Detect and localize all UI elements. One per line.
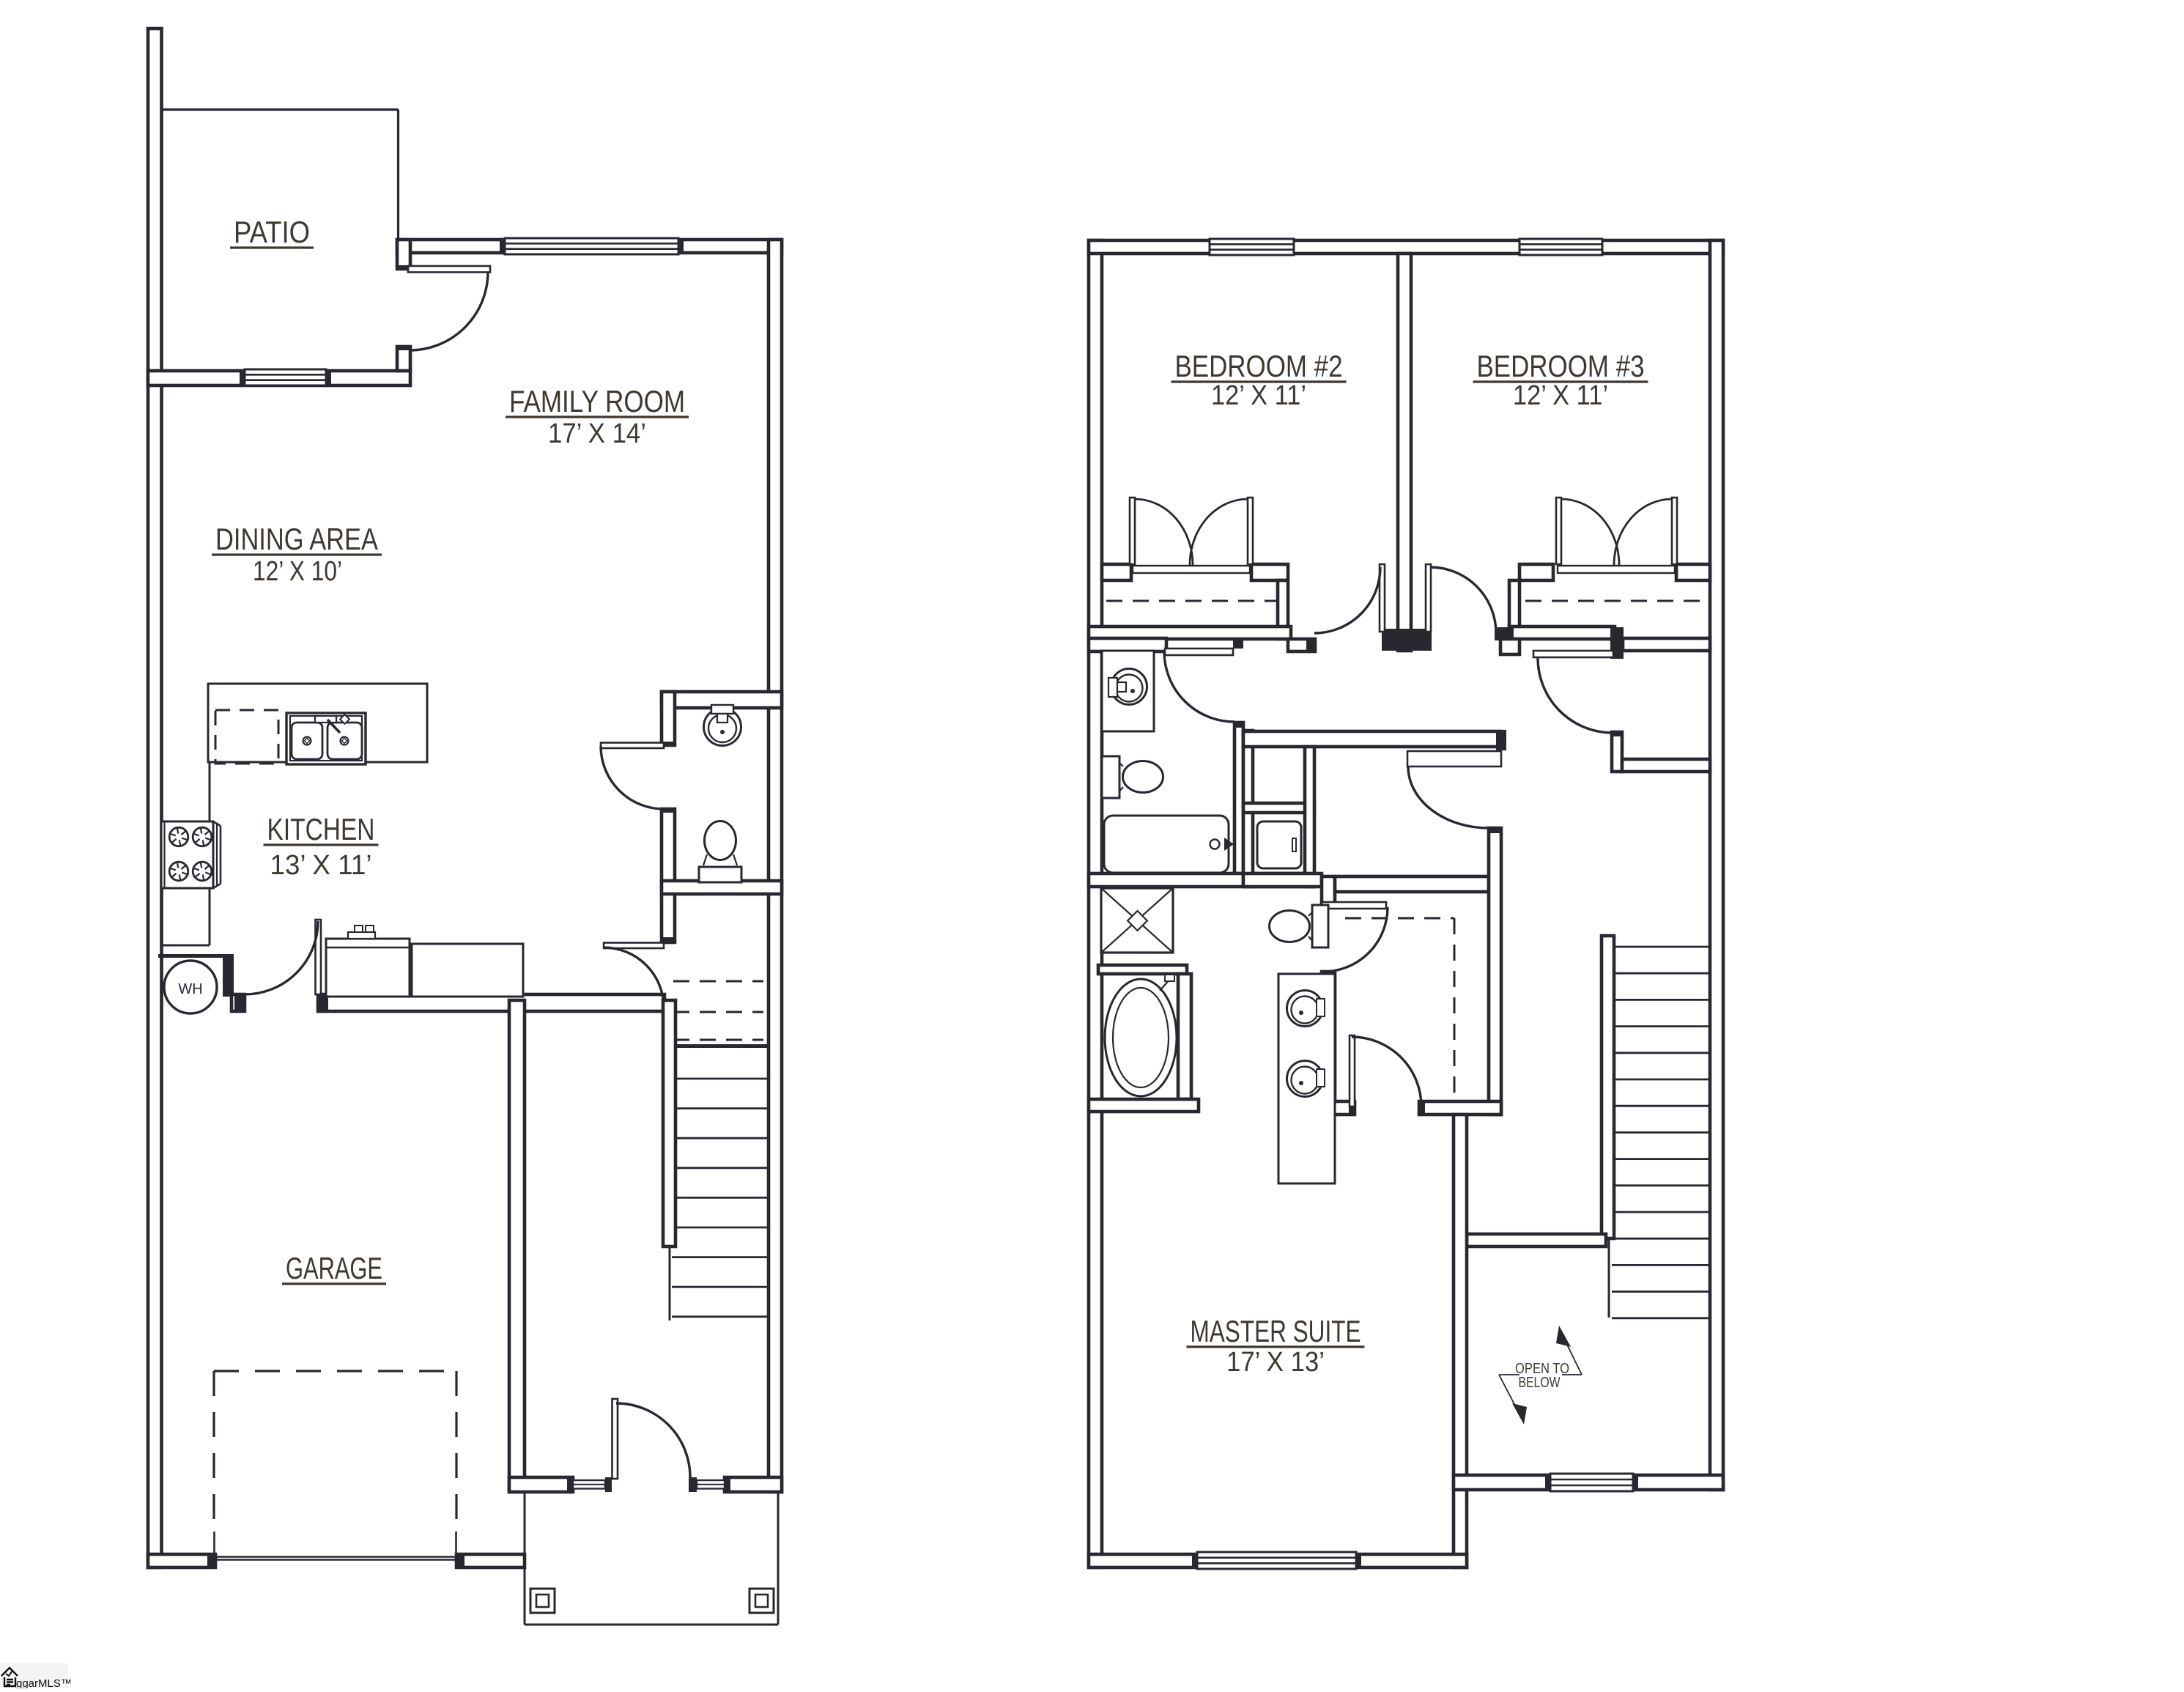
- svg-text:12’ X 11’: 12’ X 11’: [1513, 380, 1608, 411]
- svg-text:BELOW: BELOW: [1519, 1375, 1561, 1391]
- svg-text:FAMILY ROOM: FAMILY ROOM: [509, 384, 685, 418]
- svg-text:12’ X 10’: 12’ X 10’: [253, 556, 342, 587]
- svg-text:KITCHEN: KITCHEN: [267, 812, 375, 846]
- svg-text:DINING AREA: DINING AREA: [215, 522, 378, 556]
- svg-text:ggarMLS™: ggarMLS™: [16, 1677, 72, 1688]
- svg-text:13’ X 11’: 13’ X 11’: [270, 850, 372, 881]
- svg-text:WH: WH: [178, 981, 202, 997]
- svg-text:BEDROOM #2: BEDROOM #2: [1175, 349, 1343, 383]
- svg-text:MASTER SUITE: MASTER SUITE: [1191, 1314, 1361, 1348]
- svg-text:17’ X 13’: 17’ X 13’: [1226, 1347, 1325, 1378]
- svg-text:17’ X 14’: 17’ X 14’: [548, 418, 646, 449]
- svg-text:GARAGE: GARAGE: [286, 1251, 382, 1285]
- svg-text:12’ X 11’: 12’ X 11’: [1211, 380, 1306, 411]
- svg-text:PATIO: PATIO: [234, 215, 310, 249]
- svg-text:BEDROOM #3: BEDROOM #3: [1477, 349, 1645, 383]
